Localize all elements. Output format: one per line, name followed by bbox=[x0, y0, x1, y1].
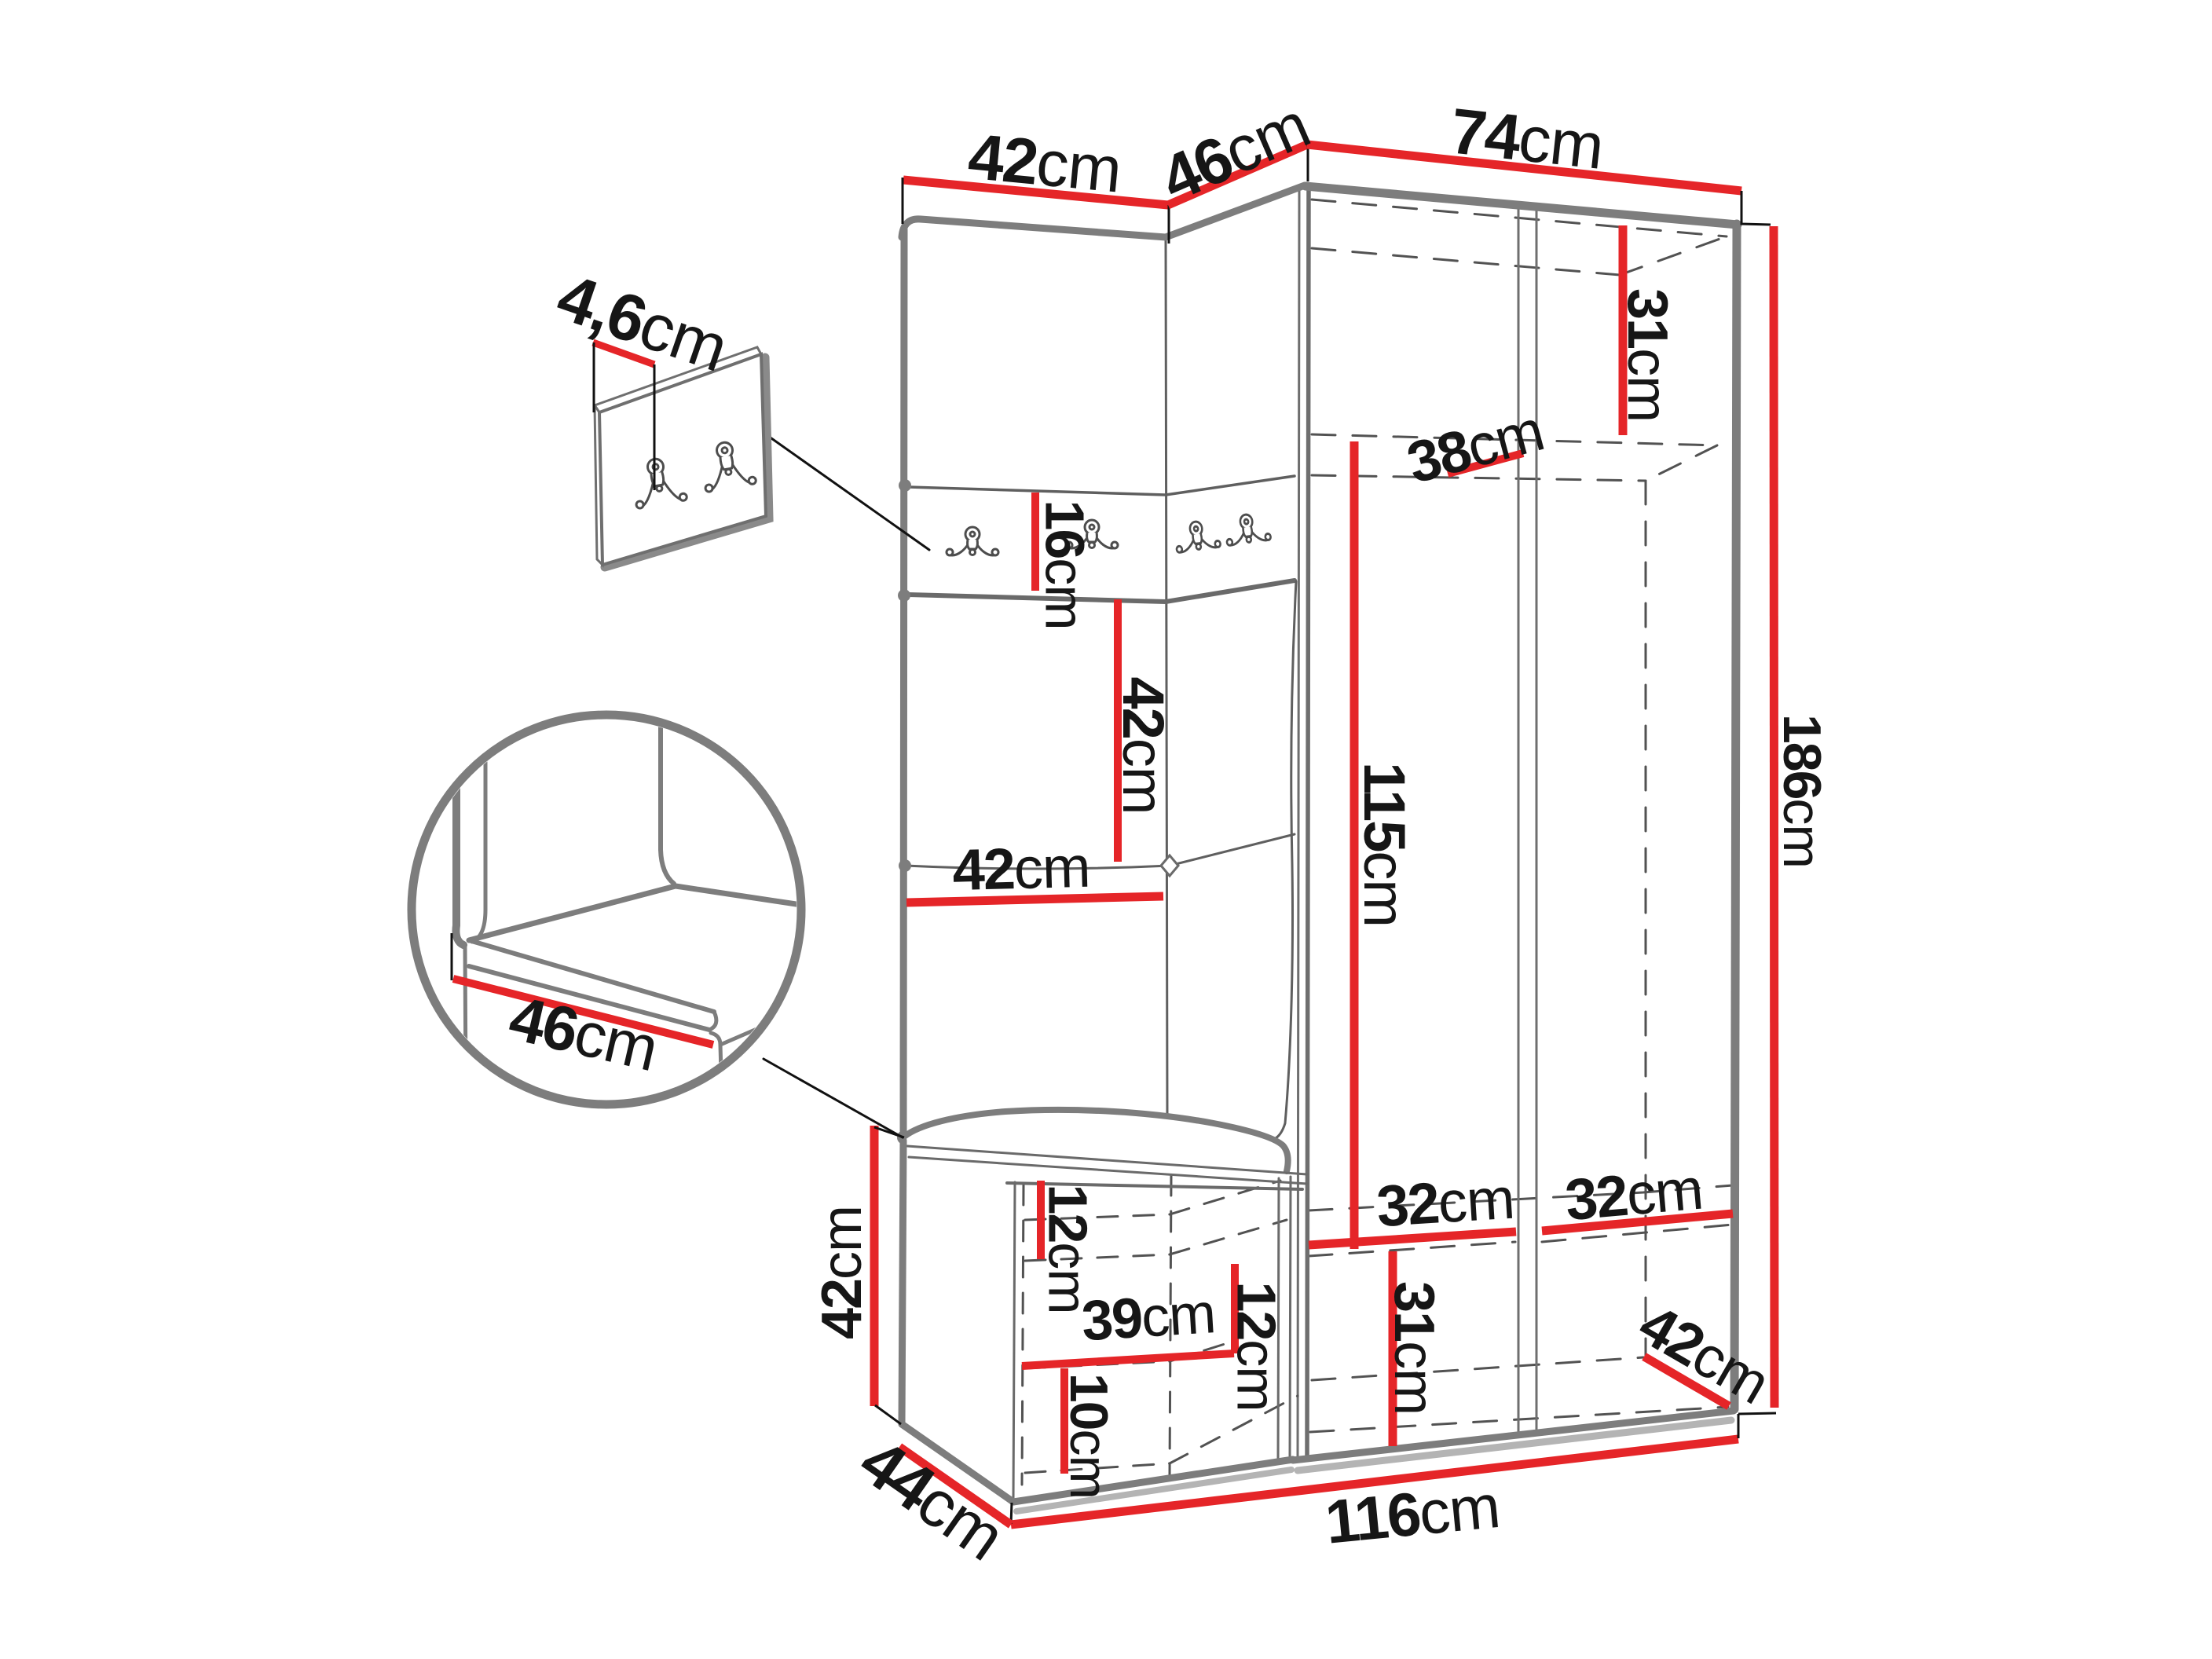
svg-text:115cm: 115cm bbox=[1352, 762, 1417, 927]
svg-text:42cm: 42cm bbox=[811, 1206, 873, 1339]
svg-text:31cm: 31cm bbox=[1616, 288, 1679, 422]
svg-text:42cm: 42cm bbox=[965, 121, 1124, 207]
svg-text:32cm: 32cm bbox=[1562, 1155, 1705, 1232]
svg-text:12cm: 12cm bbox=[1226, 1281, 1287, 1411]
svg-text:10cm: 10cm bbox=[1059, 1373, 1119, 1499]
svg-text:186cm: 186cm bbox=[1772, 714, 1832, 868]
svg-text:31cm: 31cm bbox=[1382, 1281, 1445, 1415]
svg-text:32cm: 32cm bbox=[1375, 1166, 1516, 1240]
svg-text:16cm: 16cm bbox=[1035, 500, 1096, 629]
svg-text:42cm: 42cm bbox=[1111, 677, 1176, 815]
svg-text:42cm: 42cm bbox=[951, 834, 1090, 903]
svg-text:39cm: 39cm bbox=[1080, 1282, 1218, 1353]
